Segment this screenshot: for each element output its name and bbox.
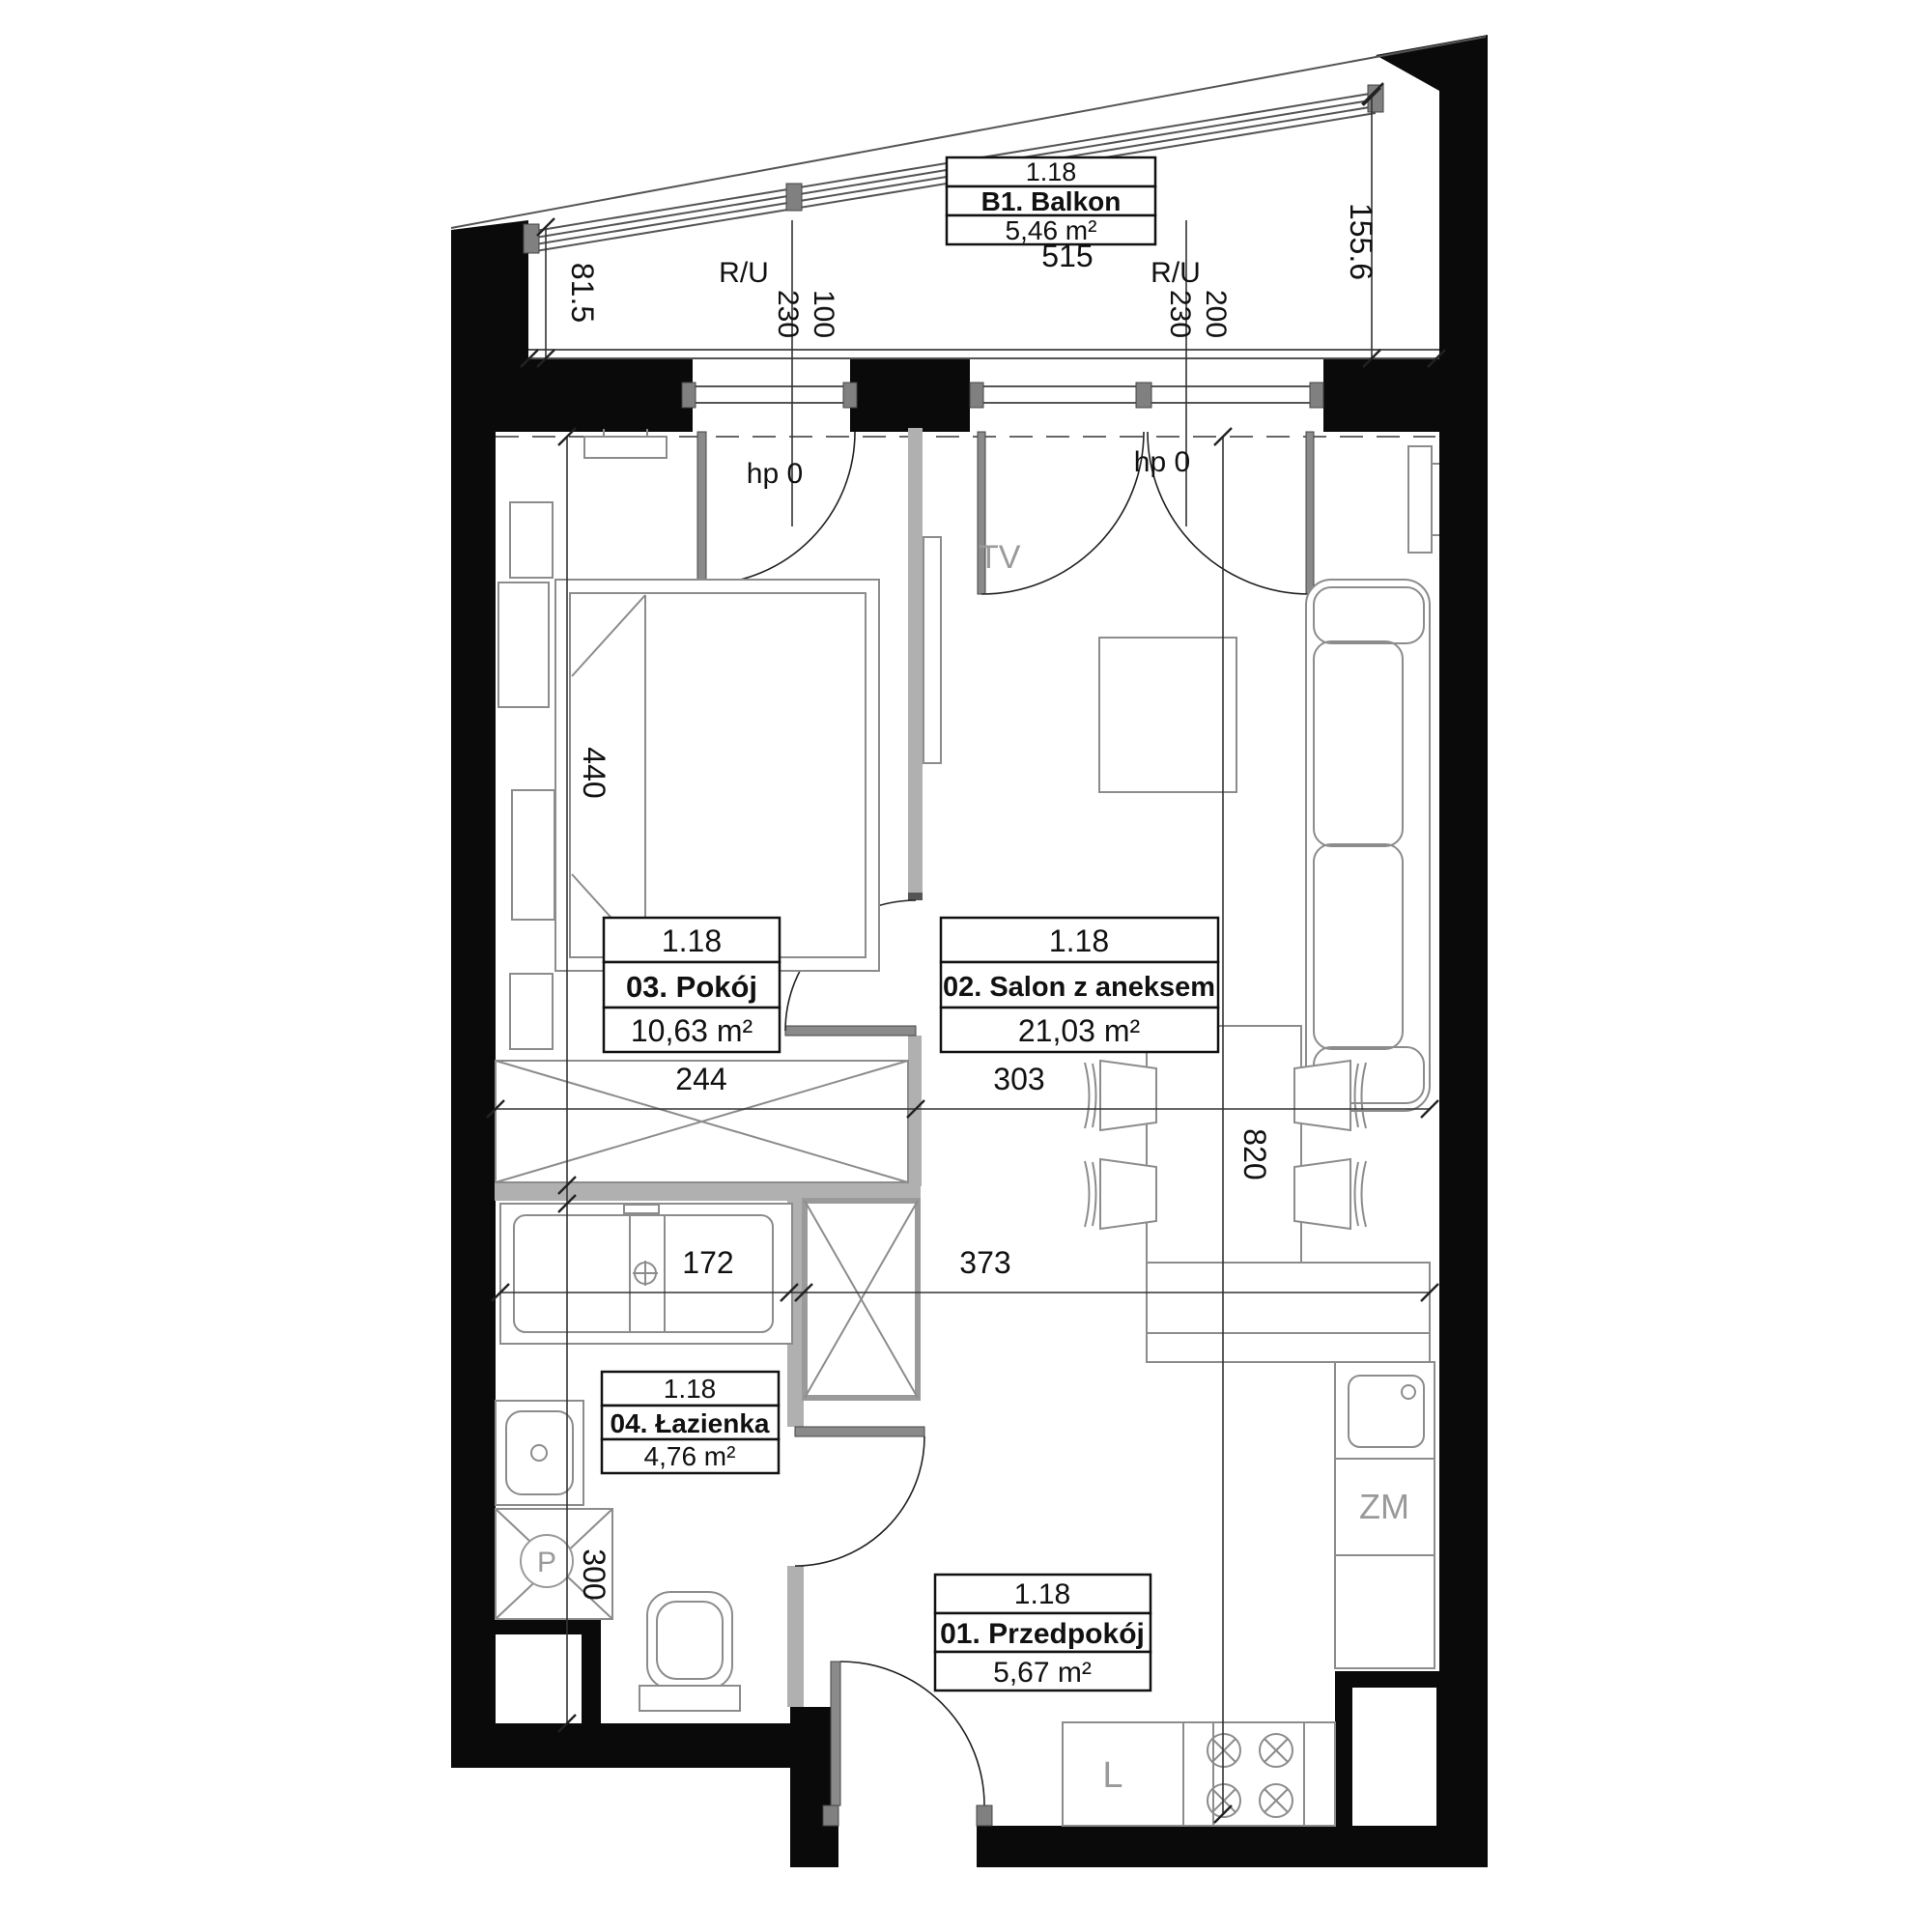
- pokoj-name: 03. Pokój: [626, 970, 757, 1004]
- bathroom-door-arc: [795, 1436, 924, 1566]
- hp-right: hp 0: [1134, 446, 1190, 478]
- railing-post-left: [524, 224, 539, 253]
- dim-bath-wall: 300: [577, 1548, 611, 1600]
- entry-door-leaf: [831, 1662, 840, 1805]
- dim-salon-depth: 820: [1237, 1128, 1272, 1179]
- bottom-wall-left: [790, 1826, 838, 1867]
- pokoj-door-leaf: [785, 1026, 916, 1036]
- dining-table: [1147, 1026, 1301, 1263]
- dim-pokoj-depth: 440: [577, 747, 611, 798]
- washer-label: P: [537, 1547, 556, 1578]
- label-salon: 1.18 02. Salon z aneksem 21,03 m²: [941, 918, 1218, 1052]
- floor-plan-drawing: P 244 303 172 373 440 300: [0, 0, 1932, 1932]
- balcony-door-salon-right-leaf: [1306, 432, 1314, 594]
- salon-area: 21,03 m²: [1018, 1013, 1141, 1048]
- opening2-mullion: [1136, 383, 1151, 408]
- pokoj-salon-wall: [908, 428, 923, 900]
- lazienka-name: 04. Łazienka: [611, 1408, 770, 1438]
- salon-name: 02. Salon z aneksem: [943, 972, 1215, 1003]
- coffee-table: [1099, 638, 1236, 792]
- balcony-pier-mid: [850, 357, 970, 432]
- opening1-jamb-left: [682, 383, 696, 408]
- dim-balcony-left: 81.5: [565, 263, 600, 323]
- washbasin: [496, 1401, 583, 1505]
- label-pokoj: 1.18 03. Pokój 10,63 m²: [604, 918, 780, 1052]
- washer-niche-wall-right: [582, 1619, 601, 1723]
- przedpokoj-code: 1.18: [1014, 1578, 1070, 1610]
- radiator-salon: [1408, 446, 1439, 553]
- opening2-jamb-left: [970, 383, 983, 408]
- hp-left: hp 0: [747, 458, 803, 490]
- dim-bathtub: 172: [682, 1245, 733, 1280]
- balkon-area: 5,46 m²: [1006, 215, 1097, 245]
- dim-hall-width: 373: [959, 1245, 1010, 1280]
- balkon-code: 1.18: [1026, 157, 1077, 186]
- opening2-jamb-right: [1310, 383, 1323, 408]
- cabinet-left: [512, 790, 554, 920]
- chair-bottom-left: [1085, 1159, 1156, 1229]
- nightstand-top: [510, 502, 553, 578]
- pokoj-salon-wall-cap: [908, 893, 923, 900]
- bottom-left-band: [451, 1723, 824, 1768]
- label-lazienka: 1.18 04. Łazienka 4,76 m²: [602, 1372, 779, 1473]
- balcony-pier-left: [496, 357, 693, 432]
- balkon-name: B1. Balkon: [981, 186, 1122, 216]
- pokoj-area: 10,63 m²: [631, 1013, 753, 1048]
- label-balkon: 1.18 B1. Balkon 5,46 m²: [947, 157, 1155, 245]
- radiator-bedroom: [584, 429, 667, 458]
- ru-right-height: 230: [1164, 290, 1196, 338]
- lazienka-area: 4,76 m²: [644, 1441, 736, 1471]
- ru-left-height: 230: [772, 290, 804, 338]
- lazienka-code: 1.18: [664, 1374, 717, 1404]
- balcony-door-bedroom-leaf: [697, 432, 706, 584]
- fridge-label: L: [1102, 1755, 1122, 1796]
- right-wall-niche: [1352, 1688, 1436, 1826]
- dresser-left: [498, 582, 549, 707]
- tv-panel: [923, 537, 941, 763]
- bathtub: [500, 1204, 792, 1344]
- dim-pokoj-width: 244: [675, 1062, 726, 1096]
- pokoj-code: 1.18: [662, 923, 722, 958]
- dim-salon-width: 303: [993, 1062, 1044, 1096]
- chair-bottom-right: [1294, 1159, 1366, 1229]
- ru-right-width: 200: [1200, 290, 1232, 338]
- railing-post-mid: [786, 184, 802, 211]
- kitchen-peninsula: [1147, 1263, 1430, 1362]
- entry-jamb-right: [977, 1805, 992, 1826]
- entry-jamb-left: [823, 1805, 838, 1826]
- sofa: [1306, 580, 1430, 1111]
- przedpokoj-area: 5,67 m²: [993, 1657, 1092, 1689]
- balcony-pier-right: [1323, 357, 1439, 432]
- dim-balcony-right: 155.6: [1344, 203, 1378, 280]
- toilet: [639, 1592, 740, 1711]
- opening1-jamb-right: [843, 383, 857, 408]
- przedpokoj-name: 01. Przedpokój: [940, 1618, 1145, 1650]
- ru-left-label: R/U: [719, 257, 769, 289]
- ru-left-width: 100: [808, 290, 839, 338]
- ru-right-label: R/U: [1151, 257, 1201, 289]
- bathroom-door-leaf: [795, 1427, 924, 1436]
- bathroom-right-wall-lower: [787, 1566, 804, 1707]
- tv-label: TV: [979, 539, 1021, 576]
- label-przedpokoj: 1.18 01. Przedpokój 5,67 m²: [935, 1575, 1151, 1690]
- kitchen-sink: [1349, 1376, 1424, 1447]
- nightstand-bottom: [510, 974, 553, 1049]
- floor-plan-page: P 244 303 172 373 440 300: [0, 0, 1932, 1932]
- bottom-wall-right: [977, 1826, 1488, 1867]
- dishwasher-label: ZM: [1359, 1487, 1409, 1526]
- salon-code: 1.18: [1049, 923, 1109, 958]
- chair-top-left: [1085, 1061, 1156, 1130]
- balcony-door-bedroom-arc: [706, 432, 855, 584]
